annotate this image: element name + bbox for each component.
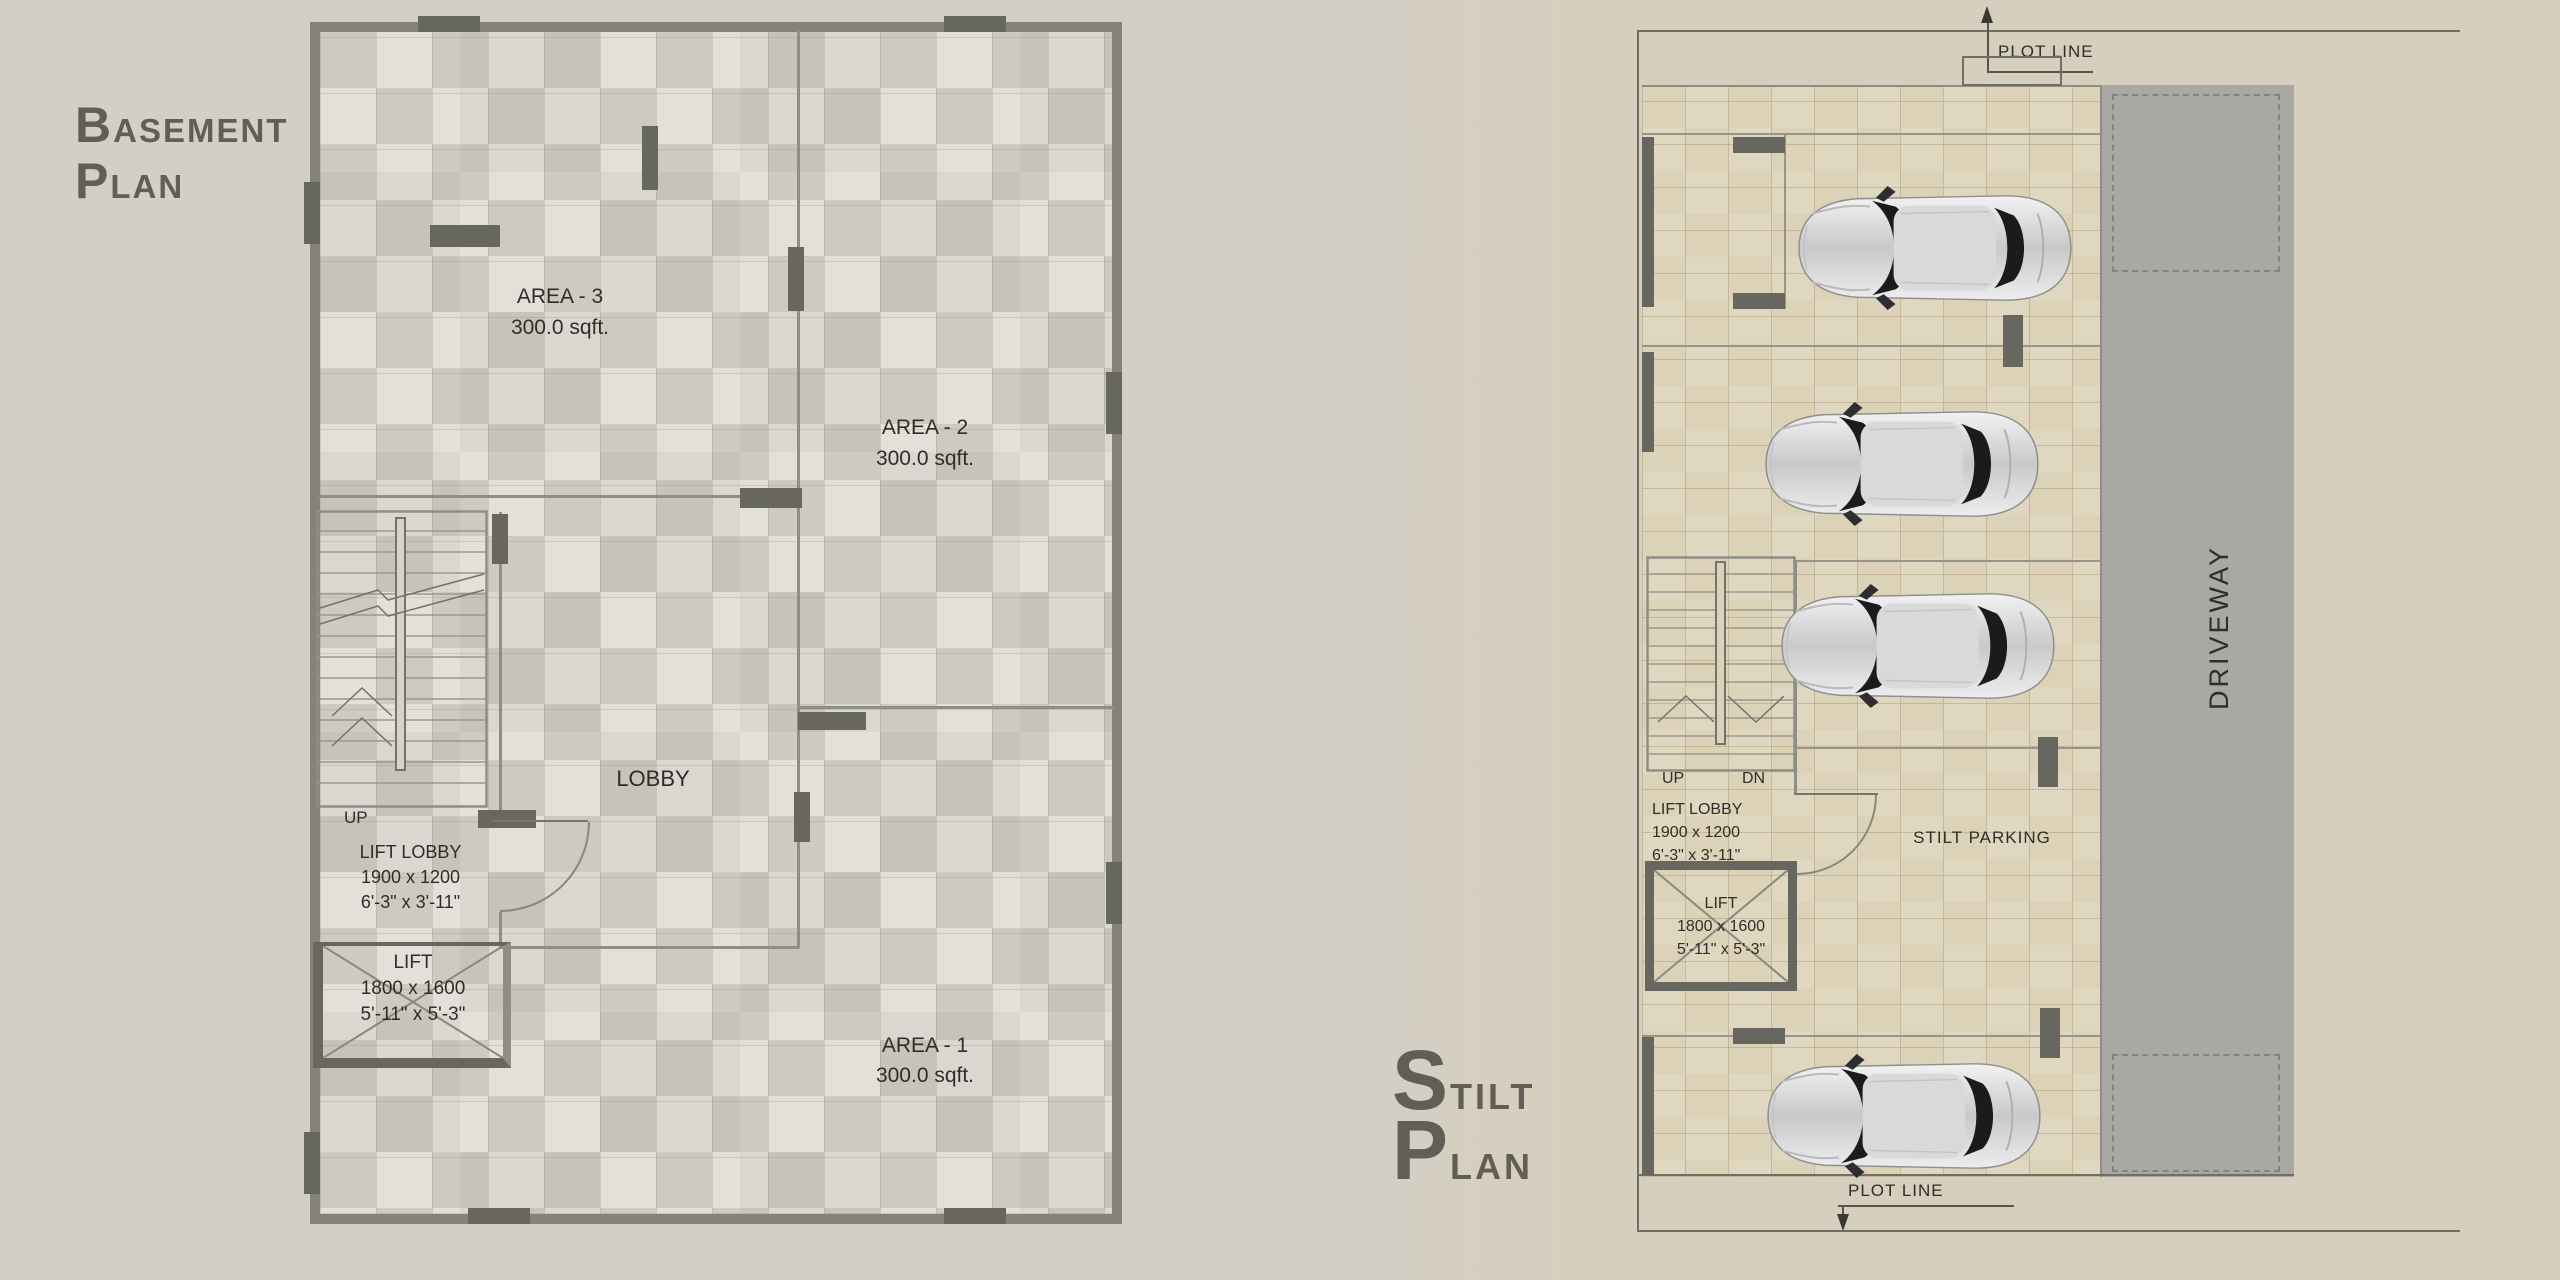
- stilt-lift-shaft: LIFT 1800 x 1600 5'-11" x 5'-3": [1645, 861, 1797, 991]
- bay-line: [1795, 560, 2102, 562]
- wall-stub: [798, 712, 866, 730]
- area3-label: AREA - 3 300.0 sqft.: [460, 281, 660, 343]
- basement-lift-lobby-label: LIFT LOBBY 1900 x 1200 6'-3" x 3'-11": [328, 840, 493, 915]
- wall-stub: [492, 514, 508, 564]
- area-size: 300.0 sqft.: [825, 443, 1025, 474]
- wall-stub: [1642, 352, 1654, 452]
- stilt-dn-label: DN: [1742, 770, 1765, 788]
- wall-stub: [1733, 293, 1785, 309]
- basement-lift-shaft: LIFT 1800 x 1600 5'-11" x 5'-3": [313, 942, 511, 1068]
- wall-stub: [1106, 862, 1122, 924]
- plot-label-underline: [1838, 1205, 2014, 1207]
- lift-lobby-dim-ft: 6'-3" x 3'-11": [1652, 844, 1797, 867]
- wall-stub: [304, 1132, 320, 1194]
- floorplan-canvas: BASEMENT PLAN LIFT 180: [0, 0, 2560, 1280]
- basement-title-line1: BASEMENT: [75, 100, 288, 150]
- stilt-lift-label-block: LIFT 1800 x 1600 5'-11" x 5'-3": [1654, 870, 1788, 961]
- lift-label: LIFT: [1654, 892, 1788, 915]
- basement-title-rest1: ASEMENT: [113, 112, 288, 149]
- wall-stub: [2040, 1008, 2060, 1058]
- wall-stub: [304, 182, 320, 244]
- wall-stub: [1733, 137, 1785, 153]
- wall-stub: [944, 1208, 1006, 1224]
- driveway-ramp-dashed-top: [2112, 94, 2280, 272]
- lift-lobby-name: LIFT LOBBY: [328, 840, 493, 865]
- lift-lobby-name: LIFT LOBBY: [1652, 798, 1797, 821]
- plot-line-left: [1637, 30, 1639, 1232]
- area-name: AREA - 3: [460, 281, 660, 312]
- lift-lobby-dim-ft: 6'-3" x 3'-11": [328, 890, 493, 915]
- basement-title-initial1: B: [75, 97, 113, 153]
- wall-lobby-bottom: [499, 946, 799, 949]
- parked-car-4: [1752, 1052, 2048, 1180]
- lift-dim-mm: 1800 x 1600: [323, 976, 503, 1002]
- wall-stub-outline: [1962, 56, 2062, 86]
- wall-stub: [1106, 372, 1122, 434]
- stilt-title-initial2: P: [1392, 1103, 1450, 1197]
- basement-staircase: [316, 510, 488, 808]
- area1-label: AREA - 1 300.0 sqft.: [825, 1031, 1025, 1091]
- plot-line-bottom-label: PLOT LINE: [1848, 1181, 1944, 1201]
- area2-label: AREA - 2 300.0 sqft.: [825, 412, 1025, 474]
- area-name: AREA - 1: [825, 1031, 1025, 1061]
- wall-stub: [642, 126, 658, 190]
- driveway-ramp-dashed-bottom: [2112, 1054, 2280, 1172]
- wall-stub: [1642, 137, 1654, 307]
- wall-stub: [740, 488, 802, 508]
- bay-line: [1642, 1035, 2100, 1037]
- area-name: AREA - 2: [825, 412, 1025, 443]
- wall-stub: [2003, 315, 2023, 367]
- area-size: 300.0 sqft.: [825, 1061, 1025, 1091]
- bay-line: [1642, 345, 2100, 347]
- wall-stub: [788, 247, 804, 311]
- wall-stub: [468, 1208, 530, 1224]
- wall-stub: [430, 225, 500, 247]
- parked-car-3: [1766, 582, 2062, 710]
- lift-lobby-dim-mm: 1900 x 1200: [328, 865, 493, 890]
- plot-arrow-up-icon: [1981, 6, 1993, 23]
- basement-title-line2: PLAN: [75, 156, 288, 206]
- wall-stub: [2038, 737, 2058, 787]
- wall-area2-bottom: [797, 706, 1114, 709]
- lift-lobby-dim-mm: 1900 x 1200: [1652, 821, 1797, 844]
- wall-stub: [794, 792, 810, 842]
- plot-arrow-down-icon: [1837, 1214, 1849, 1231]
- lift-label: LIFT: [323, 950, 503, 976]
- lift-dim-mm: 1800 x 1600: [1654, 915, 1788, 938]
- stilt-plan-title: STILT PLAN: [1392, 1038, 1535, 1192]
- lift-dim-ft: 5'-11" x 5'-3": [323, 1002, 503, 1028]
- parked-car-2: [1750, 400, 2046, 528]
- lift-dim-ft: 5'-11" x 5'-3": [1654, 938, 1788, 961]
- bay-line: [1642, 133, 2100, 135]
- lobby-label: LOBBY: [578, 766, 728, 792]
- plot-line-bottom: [1637, 1230, 2460, 1232]
- basement-up-label: UP: [344, 808, 368, 828]
- stilt-parking-label: STILT PARKING: [1857, 828, 2107, 848]
- wall-stub: [1642, 1037, 1654, 1175]
- plot-line-top: [1637, 30, 2460, 32]
- basement-lift-label-block: LIFT 1800 x 1600 5'-11" x 5'-3": [323, 946, 503, 1028]
- wall-area3-bottom: [318, 495, 800, 498]
- basement-plan-title: BASEMENT PLAN: [75, 100, 288, 206]
- wall-stub: [944, 16, 1006, 32]
- basement-title-rest2: LAN: [110, 168, 184, 205]
- parked-car-1: [1783, 184, 2079, 312]
- stilt-lift-lobby-label: LIFT LOBBY 1900 x 1200 6'-3" x 3'-11": [1652, 798, 1797, 867]
- wall-stub: [1733, 1028, 1785, 1044]
- stilt-title-rest2: LAN: [1450, 1146, 1533, 1187]
- basement-title-initial2: P: [75, 153, 110, 209]
- driveway-label: DRIVEWAY: [2204, 545, 2235, 710]
- stilt-up-label: UP: [1662, 770, 1684, 788]
- area-size: 300.0 sqft.: [460, 312, 660, 343]
- stilt-title-line2: PLAN: [1392, 1108, 1535, 1192]
- wall-stub: [418, 16, 480, 32]
